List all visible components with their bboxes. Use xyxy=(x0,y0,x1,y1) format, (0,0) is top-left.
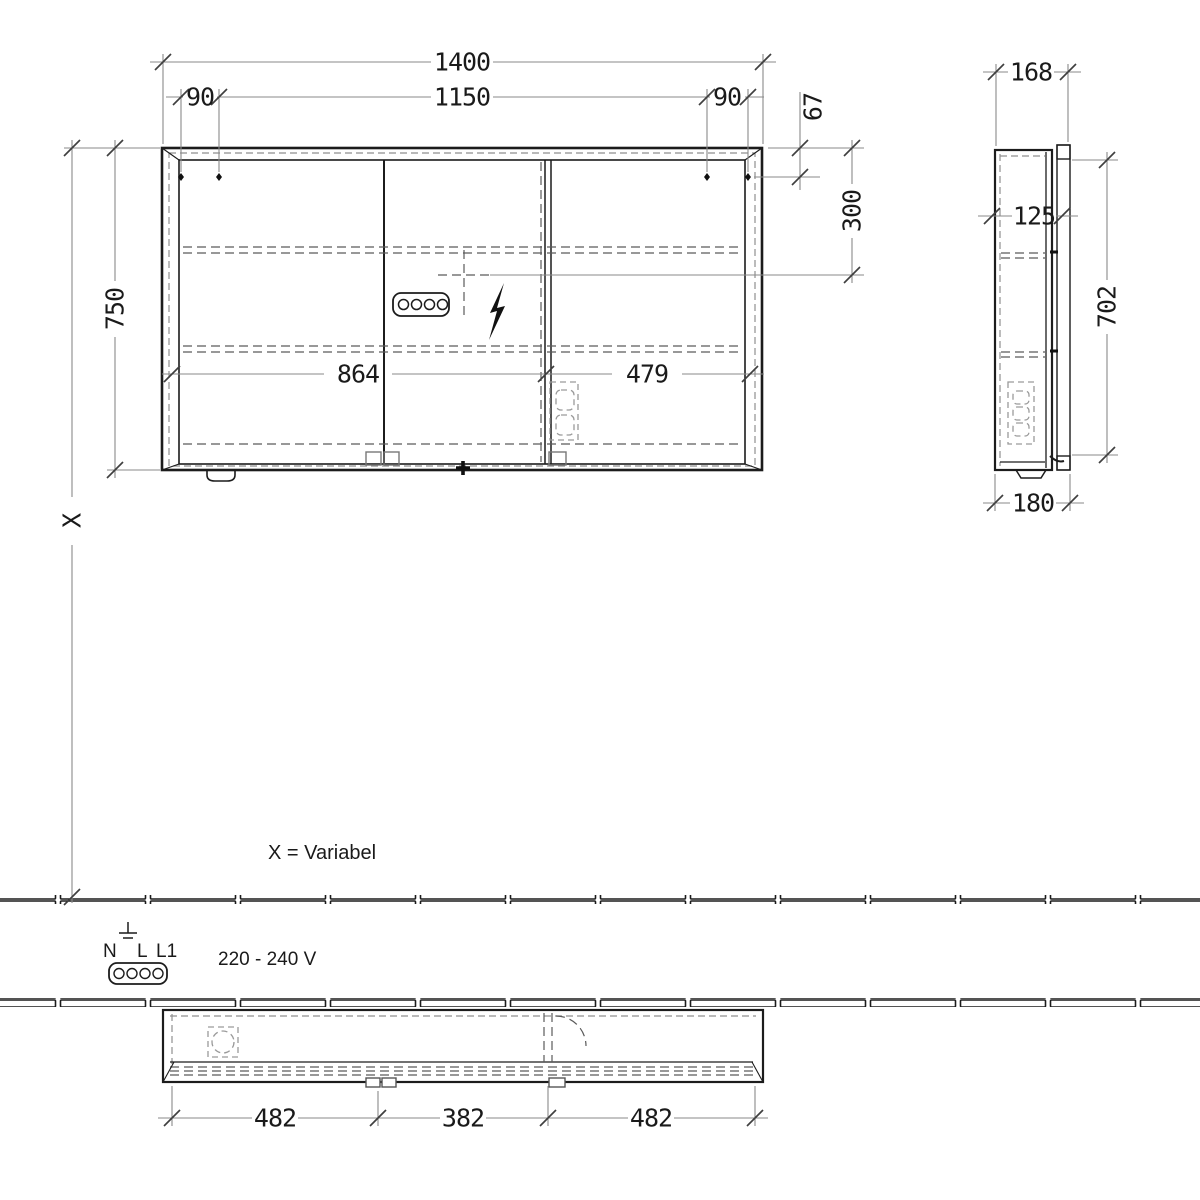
drawing-canvas: 1400 90 1150 90 750 X 67 300 864 479 xyxy=(0,0,1200,1200)
mounting-hole-icon xyxy=(178,173,751,181)
dim-180: 180 xyxy=(1012,489,1054,518)
lock-icon xyxy=(456,461,470,475)
crosshair-icon xyxy=(438,250,490,320)
handle-bump xyxy=(207,470,235,481)
power-legend: N L L1 220 - 240 V xyxy=(103,922,317,984)
ceiling-fixture-dashed xyxy=(208,1027,238,1057)
outlet-box-dashed xyxy=(550,382,578,440)
door-bottom-cap xyxy=(1057,456,1070,470)
terminal-l1-label: L1 xyxy=(156,941,177,962)
wall-tile-strip-upper xyxy=(0,895,1200,904)
door-swing-arc-icon xyxy=(556,1016,586,1046)
dim-482-left: 482 xyxy=(254,1104,296,1133)
dim-168: 168 xyxy=(1010,58,1052,87)
dim-90-right: 90 xyxy=(713,83,741,112)
bottom-view xyxy=(163,1010,763,1087)
ground-icon xyxy=(119,922,137,938)
side-body xyxy=(995,150,1052,470)
mirror-door-dashed-edge xyxy=(169,153,755,466)
dim-750: 750 xyxy=(101,288,130,330)
dim-125: 125 xyxy=(1013,202,1055,231)
socket-icon-legend xyxy=(109,963,167,984)
side-view xyxy=(995,145,1070,478)
terminal-l-label: L xyxy=(137,941,148,962)
cabinet-inner-frame xyxy=(179,160,745,464)
mirror-door-section xyxy=(1057,145,1070,470)
shelf-lines xyxy=(183,247,741,444)
dim-702: 702 xyxy=(1093,286,1122,328)
underlight-icon xyxy=(1016,470,1046,478)
bottom-bevels xyxy=(163,1062,763,1082)
wall-tile-strip-lower xyxy=(0,998,1200,1007)
side-outlet-box xyxy=(1008,382,1034,444)
dim-90-left: 90 xyxy=(186,83,214,112)
variable-note: X = Variabel xyxy=(268,842,376,864)
bottom-outline xyxy=(163,1010,763,1082)
terminal-n-label: N xyxy=(103,941,117,962)
dim-864: 864 xyxy=(337,360,379,389)
voltage-label: 220 - 240 V xyxy=(218,949,317,970)
technical-drawing-mirror-cabinet: 1400 90 1150 90 750 X 67 300 864 479 xyxy=(0,0,1200,1200)
dim-300: 300 xyxy=(838,190,867,232)
cabinet-outline xyxy=(162,148,762,470)
dim-1150: 1150 xyxy=(434,83,490,112)
side-shelf-lines xyxy=(1001,253,1045,357)
dim-482-right: 482 xyxy=(630,1104,672,1133)
frame-bevel-lines xyxy=(162,148,762,470)
door-rail-dashes xyxy=(170,1067,755,1075)
dim-479: 479 xyxy=(626,360,668,389)
dim-x: X xyxy=(58,513,87,528)
socket-icon xyxy=(393,293,449,316)
door-top-cap xyxy=(1057,145,1070,159)
lightning-bolt-icon xyxy=(489,283,505,340)
front-view xyxy=(162,148,864,481)
door-divider-top-view xyxy=(544,1013,586,1062)
dim-382: 382 xyxy=(442,1104,484,1133)
dim-67: 67 xyxy=(799,93,828,121)
bottom-dimensions: 482 382 482 xyxy=(158,1086,768,1133)
dim-1400: 1400 xyxy=(434,48,490,77)
